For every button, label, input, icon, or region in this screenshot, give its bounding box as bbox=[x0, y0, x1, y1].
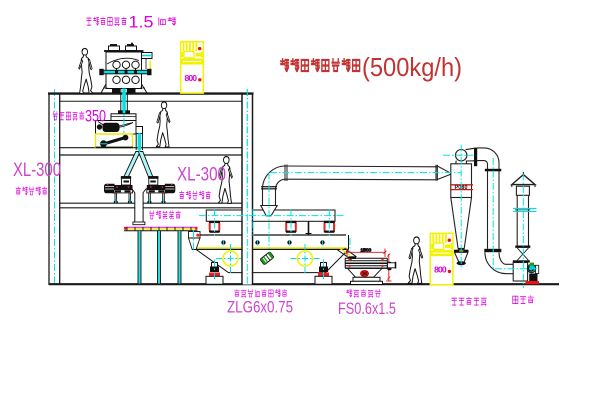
svg-text:XL-300: XL-300 bbox=[177, 164, 226, 186]
svg-text:1500: 1500 bbox=[361, 247, 372, 253]
svg-text:ZLG6x0.75: ZLG6x0.75 bbox=[227, 298, 293, 317]
svg-text:350: 350 bbox=[85, 108, 106, 126]
svg-text:(500kg/h): (500kg/h) bbox=[362, 52, 462, 82]
svg-text:XL-300: XL-300 bbox=[13, 159, 61, 181]
svg-text:1.5: 1.5 bbox=[129, 13, 154, 32]
svg-text:FS0.6x1.5: FS0.6x1.5 bbox=[338, 299, 396, 318]
